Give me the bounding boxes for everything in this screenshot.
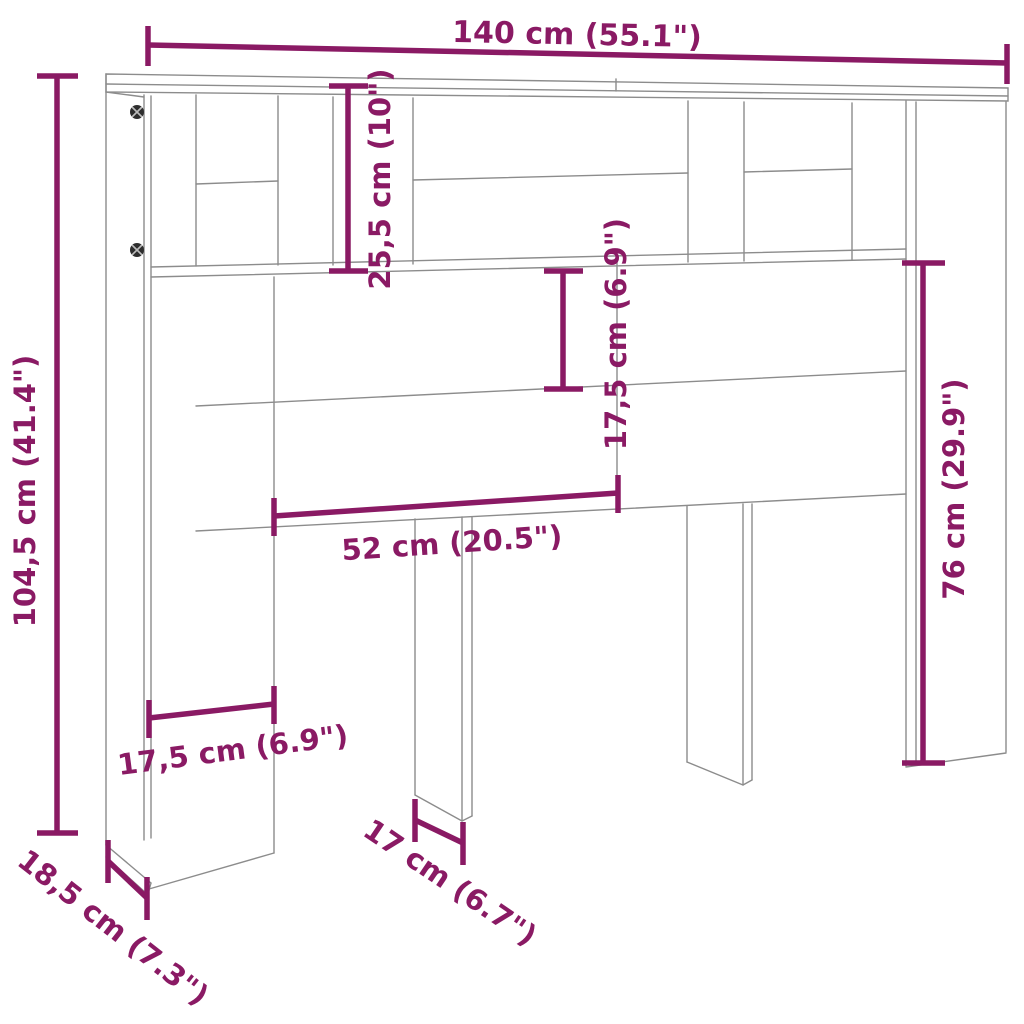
dim-overall-width: 140 cm (55.1") <box>148 15 1007 84</box>
top-shelf-compartments <box>151 95 906 277</box>
headboard-dimension-diagram: 140 cm (55.1") 104,5 cm (41.4") 25,5 cm … <box>0 0 1024 1024</box>
dim-center-leg-width: 17 cm (6.7") <box>357 799 543 953</box>
dim-center-opening-width: 52 cm (20.5") <box>274 475 618 567</box>
diagram-canvas: 140 cm (55.1") 104,5 cm (41.4") 25,5 cm … <box>0 0 1024 1024</box>
dim-overall-height-label: 104,5 cm (41.4") <box>8 355 42 628</box>
screw-icon <box>130 243 144 257</box>
dim-depth: 18,5 cm (7.3") <box>11 840 215 1012</box>
center-right-leg <box>687 504 752 785</box>
dim-lower-clearance-height: 76 cm (29.9") <box>902 263 971 763</box>
dim-upper-panel-height: 17,5 cm (6.9") <box>544 218 633 450</box>
dim-top-compartment-height: 25,5 cm (10") <box>329 68 397 289</box>
dim-center-opening-width-label: 52 cm (20.5") <box>340 519 563 568</box>
dim-side-column-width: 17,5 cm (6.9") <box>115 686 350 782</box>
center-leg <box>415 517 472 821</box>
screw-icon <box>130 105 144 119</box>
dim-lower-clearance-height-label: 76 cm (29.9") <box>937 378 971 599</box>
dim-upper-panel-height-label: 17,5 cm (6.9") <box>599 218 633 450</box>
dim-center-leg-width-label: 17 cm (6.7") <box>357 812 543 953</box>
dim-top-compartment-height-label: 25,5 cm (10") <box>363 68 397 289</box>
headboard-face <box>149 259 906 889</box>
top-panel <box>106 74 1008 101</box>
dim-overall-height: 104,5 cm (41.4") <box>8 76 78 833</box>
dimension-annotations: 140 cm (55.1") 104,5 cm (41.4") 25,5 cm … <box>8 15 1007 1012</box>
furniture-line-art <box>106 74 1008 894</box>
dim-overall-width-label: 140 cm (55.1") <box>452 15 702 55</box>
